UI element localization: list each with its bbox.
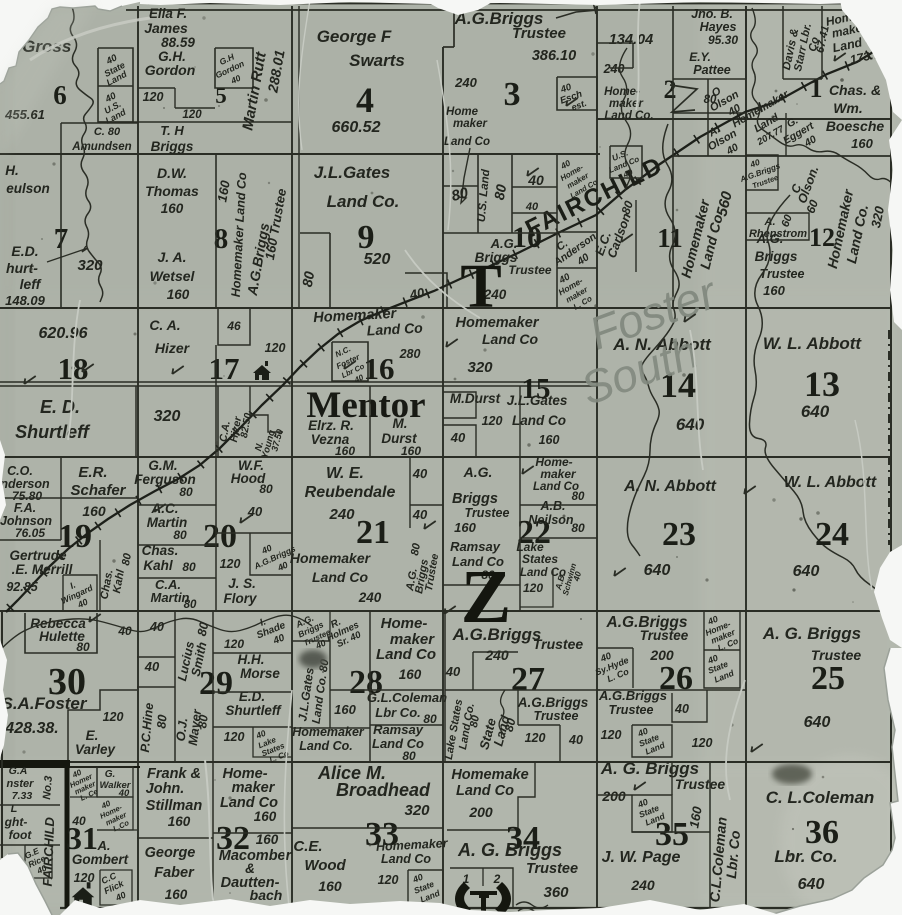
svg-text:320: 320: [404, 802, 430, 819]
svg-text:Trustee: Trustee: [640, 628, 689, 643]
svg-text:E.D.: E.D.: [11, 243, 38, 259]
svg-text:200: 200: [468, 804, 493, 820]
svg-text:27: 27: [511, 661, 545, 698]
svg-text:76.05: 76.05: [15, 526, 45, 540]
svg-text:Land Co: Land Co: [372, 736, 424, 751]
svg-text:E.Y.: E.Y.: [689, 50, 711, 64]
svg-text:Hizer: Hizer: [155, 340, 191, 356]
svg-text:20: 20: [203, 518, 237, 555]
svg-text:13: 13: [804, 364, 840, 404]
svg-text:80: 80: [423, 712, 437, 726]
svg-text:Pattee: Pattee: [693, 63, 731, 77]
svg-text:640: 640: [804, 714, 831, 731]
svg-text:Varley: Varley: [75, 742, 117, 757]
svg-text:240: 240: [328, 506, 355, 523]
svg-text:Trustee: Trustee: [526, 861, 578, 877]
svg-text:4: 4: [356, 80, 374, 120]
svg-text:Reubendale: Reubendale: [305, 484, 396, 501]
svg-text:80: 80: [704, 94, 717, 106]
svg-text:Home-: Home-: [381, 615, 428, 632]
svg-text:C. L.Coleman: C. L.Coleman: [766, 788, 875, 807]
svg-text:Faber: Faber: [154, 865, 195, 881]
svg-text:24: 24: [815, 516, 849, 553]
svg-text:John.: John.: [146, 781, 185, 797]
svg-text:120: 120: [523, 581, 543, 595]
svg-text:120: 120: [482, 414, 503, 428]
svg-text:Land Co.: Land Co.: [299, 739, 352, 753]
svg-text:G.L.Coleman: G.L.Coleman: [367, 690, 447, 705]
svg-text:E.: E.: [86, 728, 99, 743]
svg-text:C. 80: C. 80: [94, 126, 121, 138]
svg-text:240: 240: [454, 75, 477, 90]
svg-text:Jno. B.: Jno. B.: [691, 7, 733, 21]
svg-text:120: 120: [692, 736, 713, 750]
svg-text:160: 160: [454, 520, 476, 535]
svg-text:A.: A.: [97, 838, 111, 853]
svg-text:C. A.: C. A.: [149, 317, 180, 333]
svg-text:134.04: 134.04: [609, 32, 653, 48]
svg-text:Home: Home: [446, 106, 479, 118]
svg-text:Wm.: Wm.: [833, 100, 863, 116]
svg-text:Ella F.: Ella F.: [149, 6, 187, 21]
svg-text:Land Co.: Land Co.: [327, 192, 400, 211]
svg-text:A.B.: A.B.: [540, 499, 566, 513]
svg-text:160: 160: [256, 832, 279, 847]
svg-text:80: 80: [259, 482, 273, 496]
svg-text:maker: maker: [453, 118, 487, 130]
svg-text:J. A.: J. A.: [157, 249, 186, 265]
svg-text:hurt-: hurt-: [6, 260, 38, 276]
svg-text:Trustee: Trustee: [534, 709, 579, 723]
svg-text:80: 80: [402, 749, 416, 763]
svg-text:Neilson: Neilson: [528, 513, 574, 527]
svg-text:H.: H.: [5, 163, 19, 178]
svg-text:21: 21: [356, 514, 390, 551]
svg-text:6: 6: [53, 80, 67, 110]
svg-text:320: 320: [467, 359, 493, 376]
svg-text:Trustee: Trustee: [512, 25, 566, 42]
svg-text:Briggs: Briggs: [452, 491, 498, 507]
svg-text:A.G.: A.G.: [490, 236, 518, 251]
svg-text:160: 160: [168, 814, 191, 829]
svg-text:G.M.: G.M.: [148, 458, 177, 473]
svg-text:A.: A.: [764, 216, 776, 228]
svg-text:ght-: ght-: [4, 815, 28, 829]
svg-text:Land Co: Land Co: [376, 646, 436, 663]
svg-text:Shurtleff: Shurtleff: [15, 422, 91, 442]
svg-text:40: 40: [445, 664, 461, 679]
svg-text:Thomas: Thomas: [145, 183, 199, 199]
svg-text:Lbr Co.: Lbr Co.: [375, 705, 421, 720]
svg-text:160: 160: [161, 201, 184, 216]
svg-text:23: 23: [662, 516, 696, 553]
svg-text:Ramsay: Ramsay: [373, 722, 424, 737]
svg-text:Amundsen: Amundsen: [71, 141, 131, 153]
svg-text:G.A: G.A: [9, 765, 28, 777]
svg-text:Chas. &: Chas. &: [829, 82, 881, 98]
svg-text:160: 160: [318, 878, 342, 894]
svg-text:160: 160: [763, 283, 785, 298]
svg-text:Wetsel: Wetsel: [150, 268, 196, 284]
svg-text:eulson: eulson: [6, 181, 50, 196]
svg-text:George: George: [145, 845, 196, 861]
svg-text:40: 40: [568, 733, 583, 747]
svg-text:Gordon: Gordon: [145, 62, 196, 78]
svg-text:maker: maker: [540, 467, 577, 481]
svg-text:95.30: 95.30: [708, 33, 738, 47]
svg-text:120: 120: [265, 341, 286, 355]
svg-text:Hayes: Hayes: [700, 20, 737, 34]
svg-text:nster: nster: [7, 778, 35, 790]
svg-text:Wood: Wood: [304, 857, 346, 874]
svg-text:Briggs: Briggs: [755, 249, 798, 264]
svg-text:F.A.: F.A.: [14, 501, 36, 515]
svg-text:M.Durst: M.Durst: [450, 391, 501, 406]
svg-text:Homemaker: Homemaker: [290, 550, 372, 566]
svg-text:36: 36: [805, 814, 839, 851]
svg-text:120: 120: [378, 873, 399, 887]
svg-text:bach: bach: [250, 887, 283, 903]
svg-text:40: 40: [412, 507, 428, 522]
svg-text:E.D.: E.D.: [239, 689, 265, 704]
svg-text:80: 80: [184, 599, 197, 611]
svg-text:Schafer: Schafer: [70, 482, 126, 499]
svg-text:A. N. Abbott: A. N. Abbott: [623, 478, 717, 495]
svg-text:Kahl: Kahl: [143, 558, 173, 573]
svg-text:280: 280: [399, 347, 421, 361]
svg-text:40: 40: [674, 702, 689, 716]
svg-text:120: 120: [525, 731, 546, 745]
svg-text:maker: maker: [232, 780, 276, 796]
svg-text:Morse: Morse: [240, 666, 280, 681]
svg-text:No.3: No.3: [41, 775, 55, 800]
svg-text:80: 80: [195, 621, 212, 638]
svg-text:Boesche: Boesche: [826, 118, 885, 134]
svg-text:Lbr. Co.: Lbr. Co.: [774, 847, 837, 866]
svg-text:11: 11: [657, 223, 683, 253]
svg-text:320: 320: [77, 257, 103, 274]
svg-text:J.L.Gates: J.L.Gates: [314, 163, 391, 182]
svg-text:120: 120: [143, 90, 164, 104]
svg-text:George F: George F: [317, 27, 392, 46]
svg-text:120: 120: [103, 710, 124, 724]
svg-text:120: 120: [182, 109, 202, 121]
svg-text:80: 80: [76, 640, 90, 654]
svg-text:80: 80: [195, 714, 211, 729]
svg-text:80: 80: [179, 485, 193, 499]
svg-text:A. G. Briggs: A. G. Briggs: [457, 840, 562, 860]
svg-text:160: 160: [254, 809, 277, 824]
svg-text:640: 640: [676, 415, 705, 434]
svg-text:Stillman: Stillman: [146, 798, 203, 814]
svg-text:160: 160: [165, 887, 188, 902]
svg-text:80: 80: [154, 714, 169, 729]
svg-text:Home-: Home-: [604, 86, 640, 98]
svg-text:386.10: 386.10: [532, 48, 576, 64]
svg-text:leff: leff: [20, 276, 42, 292]
svg-text:120: 120: [220, 557, 241, 571]
svg-text:A.G.Briggs: A.G.Briggs: [517, 695, 589, 710]
svg-text:Land Co: Land Co: [456, 783, 514, 799]
svg-text:80: 80: [572, 491, 585, 503]
svg-text:200: 200: [601, 788, 626, 804]
svg-text:520: 520: [364, 251, 391, 268]
svg-text:160: 160: [335, 444, 355, 458]
svg-text:80: 80: [571, 521, 585, 535]
svg-text:A.G.Briggs: A.G.Briggs: [452, 625, 542, 644]
svg-text:3: 3: [504, 76, 521, 113]
svg-text:Land Co.: Land Co.: [604, 110, 653, 122]
svg-text:W. E.: W. E.: [326, 465, 364, 482]
svg-text:J. S.: J. S.: [228, 576, 256, 591]
svg-text:Swarts: Swarts: [349, 51, 405, 70]
svg-text:C.O.: C.O.: [7, 464, 33, 478]
svg-text:92.85: 92.85: [6, 580, 38, 594]
svg-text:Frank &: Frank &: [147, 766, 201, 782]
svg-text:160: 160: [539, 433, 560, 447]
svg-text:Trustee: Trustee: [760, 267, 805, 281]
svg-text:40: 40: [525, 201, 539, 213]
svg-text:Land Co: Land Co: [482, 331, 538, 347]
svg-text:240: 240: [358, 590, 382, 605]
svg-text:Elrz. R.: Elrz. R.: [308, 418, 354, 433]
svg-text:J. W. Page: J. W. Page: [602, 849, 681, 866]
svg-text:160: 160: [399, 667, 422, 682]
svg-text:80: 80: [173, 528, 187, 542]
svg-text:40: 40: [412, 466, 428, 481]
svg-text:T: T: [460, 253, 501, 321]
svg-text:88.59: 88.59: [161, 35, 195, 50]
svg-text:2: 2: [493, 872, 501, 886]
svg-text:640: 640: [801, 402, 830, 421]
svg-text:640: 640: [798, 876, 825, 893]
svg-text:A.G.Briggs: A.G.Briggs: [598, 688, 667, 703]
svg-text:States: States: [522, 552, 558, 566]
svg-text:&: &: [245, 861, 255, 876]
svg-text:Land Co: Land Co: [312, 569, 368, 585]
svg-text:Ramsay: Ramsay: [450, 539, 501, 554]
svg-text:Land Co: Land Co: [366, 320, 423, 339]
svg-text:320: 320: [154, 408, 181, 425]
svg-text:428.38.: 428.38.: [4, 720, 58, 737]
svg-text:Gombert: Gombert: [72, 852, 129, 867]
svg-text:160: 160: [851, 136, 873, 151]
svg-text:360: 360: [543, 884, 569, 901]
svg-text:80: 80: [491, 183, 509, 201]
svg-text:foot: foot: [9, 828, 33, 842]
svg-text:Flory: Flory: [223, 591, 257, 606]
svg-text:40: 40: [450, 430, 466, 445]
svg-text:W. L. Abbott: W. L. Abbott: [763, 334, 863, 353]
svg-text:Gertrude: Gertrude: [9, 548, 67, 563]
svg-text:660.52: 660.52: [332, 119, 381, 136]
svg-text:120: 120: [74, 871, 95, 885]
svg-text:640: 640: [793, 563, 820, 580]
svg-text:E. D.: E. D.: [40, 397, 80, 417]
svg-text:Trustee: Trustee: [533, 636, 584, 652]
svg-text:160: 160: [167, 287, 190, 302]
svg-text:Trustee: Trustee: [465, 506, 510, 520]
svg-text:80: 80: [182, 560, 196, 574]
svg-text:148.09: 148.09: [5, 293, 46, 308]
svg-text:17: 17: [209, 351, 240, 386]
svg-text:Briggs: Briggs: [151, 139, 194, 154]
svg-text:Trustee: Trustee: [609, 703, 654, 717]
svg-text:620.96: 620.96: [39, 325, 88, 342]
svg-text:40: 40: [149, 620, 164, 634]
svg-text:M.: M.: [393, 416, 408, 431]
svg-text:120: 120: [224, 637, 244, 651]
svg-text:Homemake: Homemake: [451, 767, 528, 783]
svg-text:80: 80: [299, 270, 317, 288]
svg-text:Homemaker: Homemaker: [455, 315, 539, 331]
svg-text:Broadhead: Broadhead: [336, 780, 431, 800]
svg-text:160: 160: [401, 444, 421, 458]
svg-text:E.R.: E.R.: [78, 464, 107, 481]
svg-text:James: James: [144, 20, 188, 36]
svg-text:7.33: 7.33: [12, 790, 33, 802]
svg-text:Shurtleff: Shurtleff: [225, 703, 282, 718]
svg-text:A.G.: A.G.: [463, 464, 493, 480]
svg-text:5: 5: [215, 83, 227, 108]
svg-text:D.W.: D.W.: [157, 165, 187, 181]
svg-text:240: 240: [484, 647, 509, 663]
svg-text:A. G. Briggs: A. G. Briggs: [762, 624, 861, 643]
svg-text:29: 29: [199, 665, 233, 702]
svg-text:G.: G.: [105, 769, 116, 780]
svg-text:Trustee: Trustee: [508, 263, 551, 277]
svg-text:FAIRCHILD: FAIRCHILD: [40, 816, 57, 886]
svg-text:Homemaker: Homemaker: [292, 725, 365, 739]
svg-text:Land Co: Land Co: [444, 136, 490, 148]
svg-text:160: 160: [334, 702, 356, 717]
svg-text:C.E.: C.E.: [293, 838, 322, 855]
svg-text:H.H.: H.H.: [238, 652, 265, 667]
svg-text:40: 40: [144, 659, 160, 674]
svg-text:31: 31: [66, 820, 98, 856]
svg-text:46: 46: [226, 319, 241, 333]
svg-text:240: 240: [630, 877, 655, 893]
svg-text:120: 120: [224, 730, 245, 744]
svg-text:120: 120: [601, 728, 622, 742]
svg-text:T. H: T. H: [160, 123, 184, 138]
svg-text:J.L.Gates: J.L.Gates: [507, 393, 568, 408]
svg-text:Trustee: Trustee: [675, 776, 726, 792]
svg-text:25: 25: [811, 660, 845, 697]
svg-text:160: 160: [82, 503, 106, 519]
svg-text:640: 640: [644, 562, 671, 579]
svg-text:Land Co: Land Co: [381, 852, 431, 866]
svg-text:Macomber: Macomber: [219, 848, 293, 864]
